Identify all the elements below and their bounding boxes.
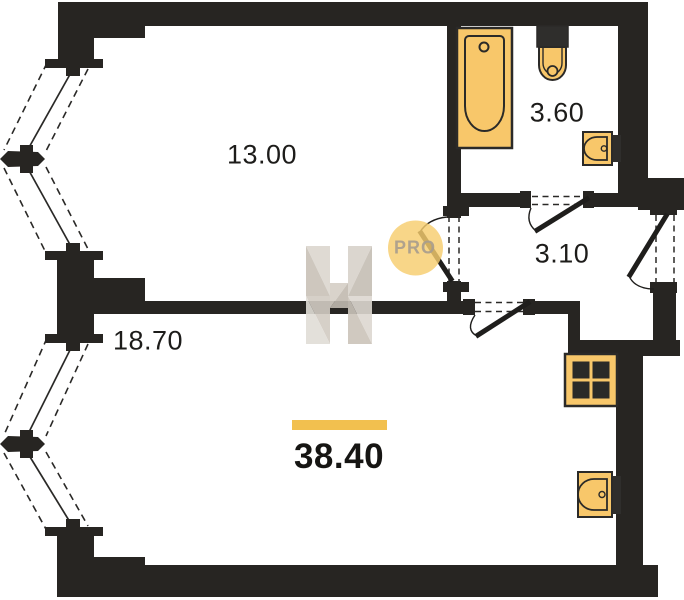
sill-nub xyxy=(66,68,80,76)
room-door-post xyxy=(463,299,475,315)
toilet-icon xyxy=(537,26,568,80)
bathtub-icon xyxy=(457,28,512,148)
entry-door-leaf xyxy=(630,216,666,275)
wall-nook-connector xyxy=(568,314,580,342)
total-area-label: 38.40 xyxy=(294,437,384,477)
wall-divider-left xyxy=(58,301,465,314)
bay-bottom-apex xyxy=(0,430,45,458)
wall-top-left-leg xyxy=(58,2,94,62)
room-area-label-18: 18.70 xyxy=(113,326,183,357)
entry-door-post xyxy=(650,282,677,293)
bath-door-leaf xyxy=(537,199,587,230)
wall-right xyxy=(616,356,643,570)
bath-door-arc xyxy=(529,208,536,231)
hallway-area-label: 3.10 xyxy=(535,239,590,270)
wall-divider-right xyxy=(533,301,580,314)
hall-door-post xyxy=(443,206,469,216)
room-door-arc xyxy=(470,315,477,336)
bay-top-apex xyxy=(0,145,45,173)
bay-window-bottom xyxy=(4,338,88,531)
wash-basin-icon xyxy=(583,132,621,165)
hall-door-post xyxy=(443,282,469,292)
watermark-h-logo xyxy=(306,246,372,344)
wall-entry-bottom xyxy=(653,293,676,342)
sill-nub xyxy=(66,343,80,351)
sill-nub xyxy=(66,519,80,527)
entry-door-post xyxy=(650,204,677,215)
sill-nub xyxy=(66,243,80,251)
wall-top xyxy=(58,2,648,26)
room-door-leaf xyxy=(478,303,528,335)
sill-top-bay-upper xyxy=(45,59,103,68)
floorplan-canvas: 13.00 18.70 3.60 3.10 38.40 PRO xyxy=(0,0,684,600)
stove-icon xyxy=(565,354,617,406)
sill-bottom-bay-lower xyxy=(45,527,103,536)
wall-bottom xyxy=(58,565,658,597)
watermark-pro-text: PRO xyxy=(394,238,436,259)
wall-hall-top-left xyxy=(447,193,531,207)
total-area-accent-bar xyxy=(292,420,387,430)
floorplan-svg xyxy=(0,0,684,600)
bathroom-area-label: 3.60 xyxy=(530,98,585,129)
bay-bottom-dashed-outline xyxy=(4,338,88,531)
bay-bottom-glass xyxy=(27,344,73,527)
kitchen-sink-icon xyxy=(578,472,621,517)
room-area-label-13: 13.00 xyxy=(227,140,297,171)
bath-door-post xyxy=(520,191,531,208)
